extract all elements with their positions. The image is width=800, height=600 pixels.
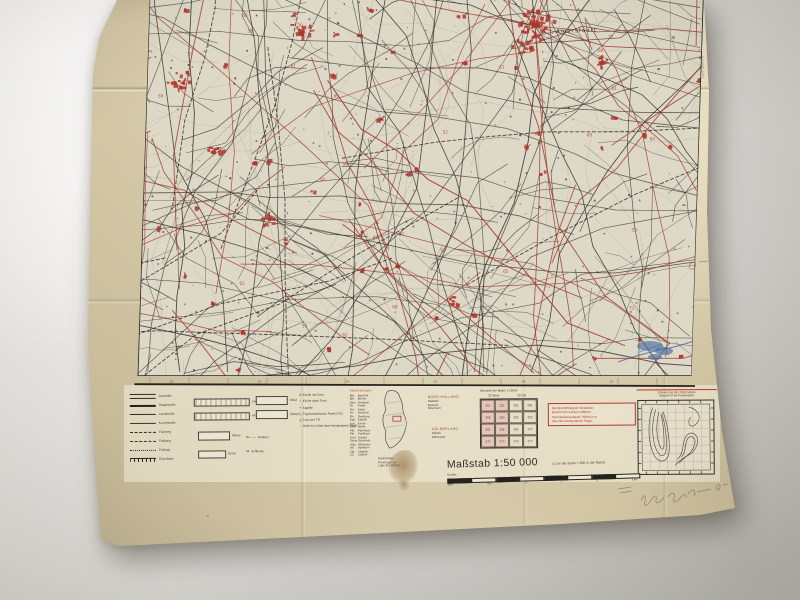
legend-profile-2: eingleisig [194,406,265,426]
scale-tick: 500 [487,483,491,486]
province-places: NaardenBussumHilversum [428,400,459,411]
svg-text:59: 59 [302,323,308,328]
symbol-label: Turm am T.P. [303,418,320,422]
sheet-cell: 352 [495,400,509,412]
road-line-sample [130,414,156,415]
road-line-sample [130,394,156,399]
svg-text:55: 55 [188,51,194,56]
legend-box-deich: Deich [198,444,236,464]
road-label: Eisenbahn [159,457,174,461]
sheet-cell: 359 [495,412,509,424]
road-line-sample [130,404,156,406]
legend-road-row: Autobahn [130,392,176,401]
svg-text:56: 56 [440,248,446,253]
misc-label: Graben [258,435,268,439]
misc-label: Wiese [232,433,241,437]
sheet-cell: 365 [481,424,495,436]
printed-map-area: 5556575859606162636465666768697071725556… [0,0,800,600]
road-line-sample [130,432,156,433]
abbreviation-short: Zo. [350,453,358,457]
sheet-index-table: Übersicht der Blätter 1:25000 32 West 32… [480,389,538,449]
svg-text:65: 65 [503,269,509,274]
symbol-label: Trigonometrischer Punkt (T.P.) [303,411,343,415]
road-label: Hauptstraße [159,403,176,407]
legend-symbol-row: ◬Turm am T.P. [298,418,348,423]
svg-text:68: 68 [392,304,398,309]
legend-road-row: Feldweg [130,437,176,446]
legend-symbol-row: △Trigonometrischer Punkt (T.P.) [298,411,348,416]
legend-symbol-row: +Kapelle [298,405,348,410]
svg-text:59: 59 [343,162,349,167]
symbol-label: Kirche ohne Turm [303,399,327,403]
road-line-sample [130,441,156,442]
misc-label: Schleuse [251,449,264,453]
abbreviations-list: Bhf.Bahnhof Brk.Brücke Dkm.Denkmal Fb.Fa… [350,394,373,457]
svg-text:66: 66 [334,94,340,99]
misc-label: Deich [228,451,236,455]
province-place: Barneveld [432,435,458,439]
sheet-cell: 355 [509,400,523,412]
svg-text:58: 58 [320,177,326,182]
sheet-cell: 351 [481,400,495,412]
sheet-cell: 377 [523,436,537,448]
road-label: Fußweg [159,448,170,452]
sheet-group-ost: 32 Ost [508,394,536,398]
svg-text:56: 56 [158,94,164,99]
legend-roads-column: Autobahn Hauptstraße Landstraße Kunststr… [130,392,177,464]
province-places: NijkerkBarneveld [432,432,458,439]
svg-text:72: 72 [608,34,614,39]
road-label: Landstraße [159,412,175,416]
province-block-nordholland: NORD-HOLLAND NaardenBussumHilversum [428,395,459,411]
road-line-sample [130,450,156,451]
svg-text:60: 60 [587,133,593,138]
panel-subtitle: Beispiel für die Punktangabe [637,394,717,398]
sheet-cell: 363 [523,412,537,424]
symbol-label: Kirche mit Turm [303,393,324,397]
road-line-sample [130,423,156,424]
legend-road-row: Kunststraße [130,419,176,428]
area-box [256,410,288,419]
svg-text:61: 61 [291,63,297,68]
grid-explanation-panel: Erläuterung des Gitternetzes Beispiel fü… [637,389,718,481]
legend-abbreviations: Abkürzungen Bhf.Bahnhof Brk.Brücke Dkm.D… [350,389,373,457]
rail-profile-box [194,398,250,406]
sheet-index-grid: 3513523553563583593623633653663693703723… [480,399,538,449]
province-block-gelderland: GELDERLAND NijkerkBarneveld [432,427,458,440]
svg-text:58: 58 [247,29,253,34]
svg-text:62: 62 [342,333,348,338]
road-line-sample [130,457,156,461]
svg-text:63: 63 [242,13,248,18]
svg-text:70: 70 [298,23,304,28]
svg-text:57: 57 [499,65,505,70]
road-label: Feldweg [159,439,171,443]
svg-text:69: 69 [373,235,379,240]
misc-label: Wald [290,398,297,402]
svg-text:57: 57 [443,130,449,135]
legend-schleuse: ⋈Schleuse [246,442,264,462]
road-label: Autobahn [159,394,172,398]
sheet-cell: 358 [481,412,495,424]
svg-text:62: 62 [346,380,350,384]
netherlands-outline [378,389,412,451]
sheet-cell: 369 [509,424,523,436]
legend-symbols-column: ⊙Kirche mit Turm ○Kirche ohne Turm +Kape… [298,393,348,431]
sheet-cell: 362 [509,412,523,424]
scale-note: (1 cm der Karte = 500 m der Natur) [552,460,605,465]
legend-road-row: Fahrweg [130,428,176,437]
paper-speck [672,36,675,39]
sheet-cell: 366 [495,424,509,436]
sheet-cell: 372 [481,436,495,448]
svg-text:63: 63 [434,380,438,384]
legend-symbol-row: ○Kirche ohne Turm [298,399,348,404]
area-box [198,450,226,458]
abbreviation-meaning: Zollamt [358,452,367,456]
svg-text:60: 60 [598,48,604,53]
legend-symbol-row: ⊙Kirche mit Turm [298,393,348,398]
scale-block: Maßstab 1:50 000 (1 cm der Karte = 500 m… [447,449,641,486]
map-margin-imprint: Ausgabe 1943 [701,56,704,79]
grid-diagram [637,399,716,476]
rail-profile-box [194,412,250,420]
legend-road-row: Eisenbahn [130,455,176,464]
red-note-box: Die Beschriftung der Gewässerbezieht sic… [548,403,636,427]
area-box [198,432,230,441]
legend-road-row: Fußweg [130,446,176,455]
paper-speck [206,515,209,517]
paper-stain-small [398,478,410,492]
sheet-group-west: 32 West [480,394,508,398]
scale-tick: 2 [596,480,598,483]
abbreviation-row: Zo.Zollamt [350,453,372,457]
symbol-label: Kapelle [303,405,313,409]
svg-text:61: 61 [612,86,618,91]
road-label: Fahrweg [159,430,171,434]
lock-symbol: ⋈ [246,449,249,453]
svg-text:55: 55 [632,227,638,232]
sheet-cell: 370 [523,424,537,436]
sheet-cell: 376 [509,436,523,448]
legend-road-row: Landstraße [130,410,176,419]
handwritten-note [618,484,728,505]
water-symbol: W—·— [246,435,256,439]
svg-text:64: 64 [650,136,656,141]
scale-tick: 3 km [632,478,638,481]
svg-text:62: 62 [240,281,246,286]
svg-text:60: 60 [170,380,174,384]
sheet-cell: 356 [523,400,537,412]
scale-label: Maßstab 1:50 000 [447,456,538,471]
scale-tick: 1000 [447,484,453,487]
sheet-index-groups: 32 West 32 Ost [480,394,536,398]
road-label: Kunststraße [159,421,176,425]
svg-text:71: 71 [629,305,635,310]
province-place: Hilversum [428,407,459,411]
svg-text:61: 61 [258,380,262,384]
svg-text:64: 64 [522,380,526,384]
svg-text:65: 65 [610,380,614,384]
sheet-cell: 373 [495,436,509,448]
legend-symbol-row: ·Höhe in m über dem Amsterdamer Pegel [298,424,348,429]
svg-text:67: 67 [399,232,405,237]
red-note-line: über dem Amsterdamer Pegel. [552,419,632,424]
scale-tick: 1 [561,481,563,484]
photo-of-folded-map: 5556575859606162636465666768697071725556… [0,0,800,600]
legend-road-row: Hauptstraße [130,401,176,410]
legend-box-sumpf: Sumpf [256,405,299,425]
scale-tick: 0 [525,482,527,485]
